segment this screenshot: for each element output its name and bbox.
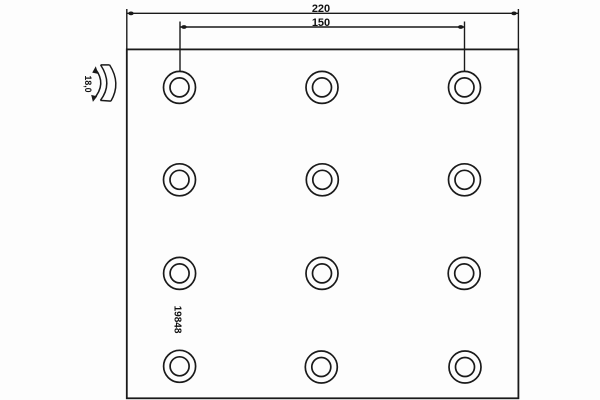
svg-text:150: 150	[312, 17, 330, 29]
svg-text:220: 220	[312, 3, 330, 15]
svg-text:19848: 19848	[172, 306, 183, 334]
svg-text:18,0: 18,0	[83, 75, 93, 92]
